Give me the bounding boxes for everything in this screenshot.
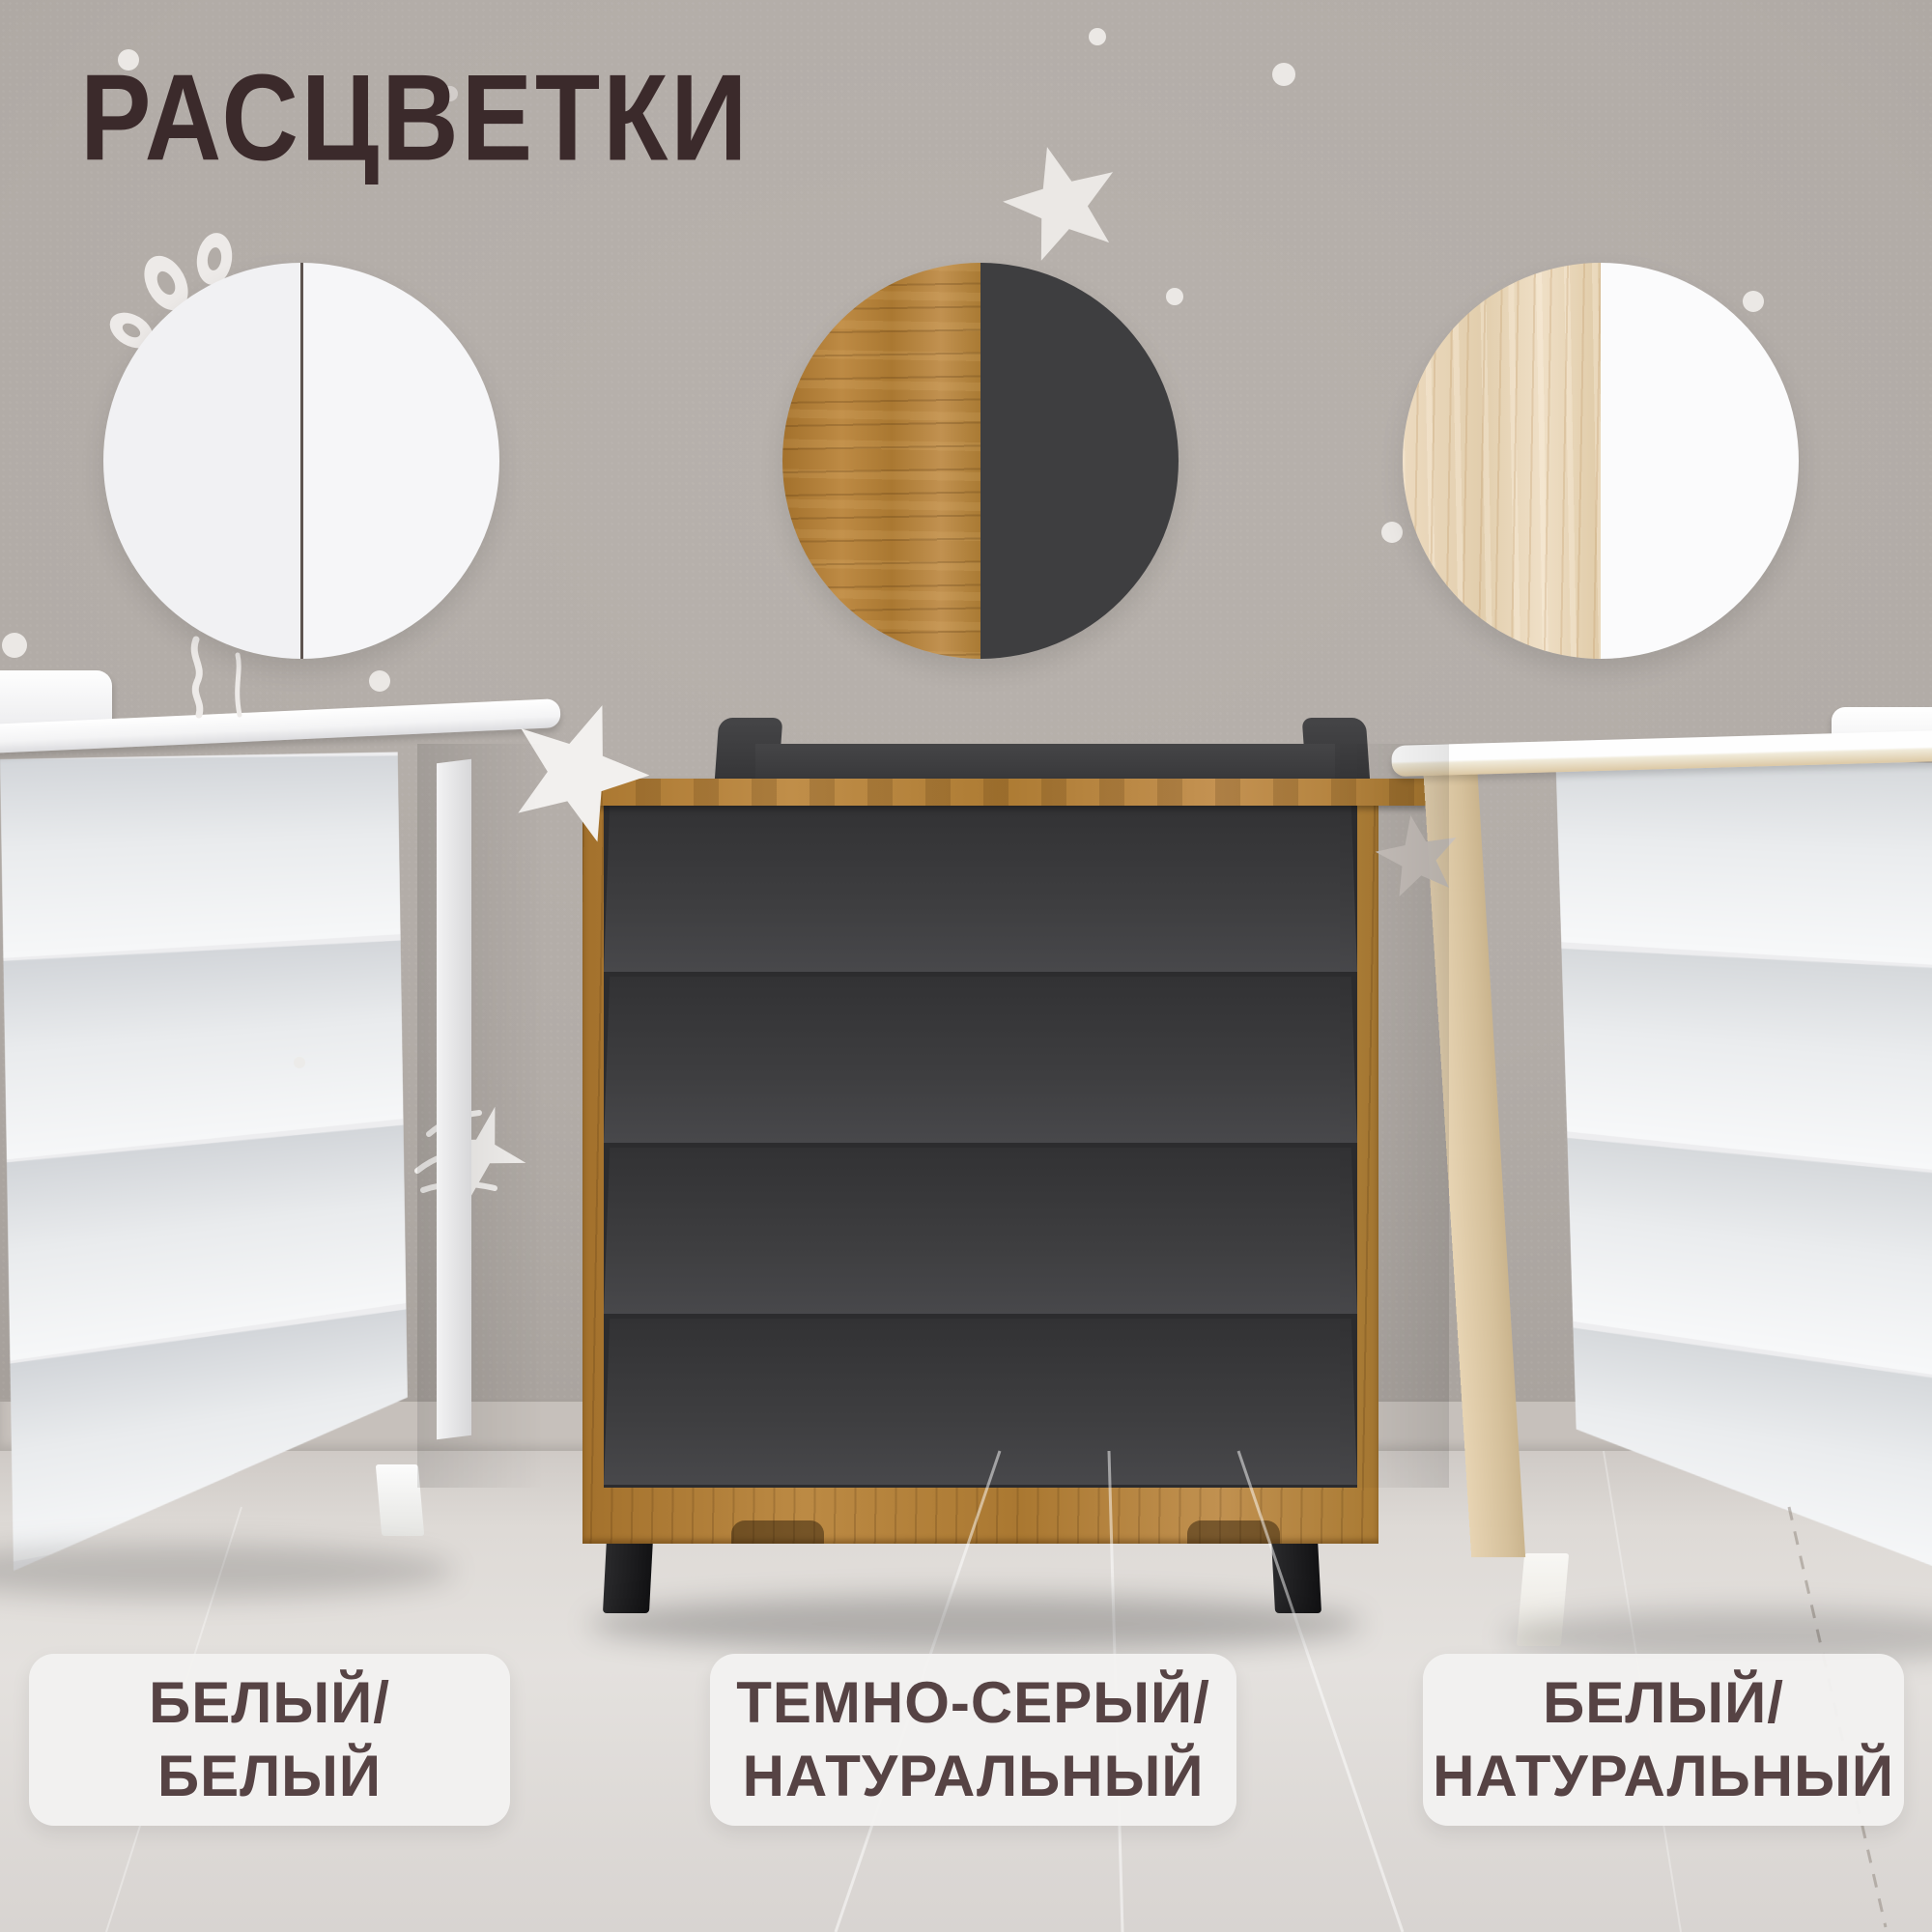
option-label-line: НАТУРАЛЬНЫЙ <box>743 1740 1205 1813</box>
option-label-line: БЕЛЫЙ <box>157 1740 382 1813</box>
option-label-white-natural: БЕЛЫЙ/ НАТУРАЛЬНЫЙ <box>1423 1654 1904 1826</box>
option-label-line: НАТУРАЛЬНЫЙ <box>1433 1740 1894 1813</box>
floor-shadow <box>589 1596 1362 1652</box>
product-card: РАСЦВЕТКИ <box>0 0 1932 1932</box>
option-label-line: БЕЛЫЙ/ <box>1543 1666 1784 1740</box>
option-label-darkgray-natural: ТЕМНО-СЕРЫЙ/ НАТУРАЛЬНЫЙ <box>710 1654 1236 1826</box>
option-label-line: БЕЛЫЙ/ <box>149 1666 390 1740</box>
dresser-side-panel <box>437 759 471 1439</box>
option-label-white-white: БЕЛЫЙ/ БЕЛЫЙ <box>29 1654 510 1826</box>
option-label-line: ТЕМНО-СЕРЫЙ/ <box>736 1666 1210 1740</box>
